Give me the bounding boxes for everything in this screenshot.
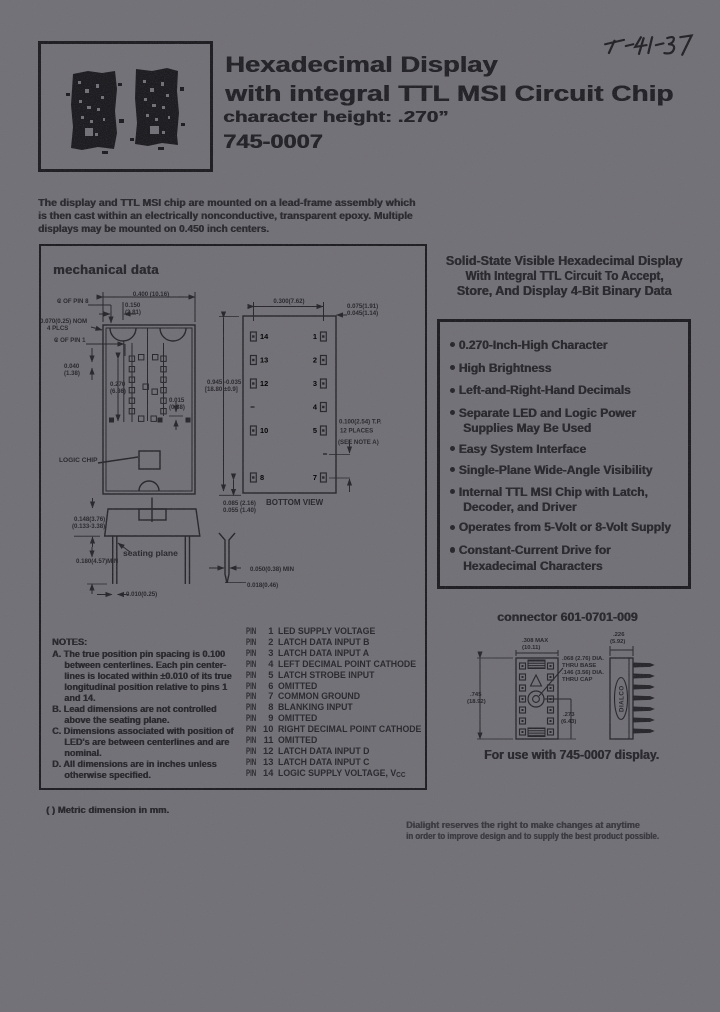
svg-text:0.180(4.57)MIN: 0.180(4.57)MIN — [76, 558, 118, 565]
svg-text:12: 12 — [260, 379, 268, 388]
svg-text:(5.92): (5.92) — [610, 639, 625, 645]
svg-text:4: 4 — [313, 403, 318, 412]
svg-text:.068 (2.76) DIA.: .068 (2.76) DIA. — [562, 656, 604, 662]
svg-text:14: 14 — [260, 332, 269, 341]
svg-text:.308 MAX: .308 MAX — [522, 638, 548, 644]
svg-text:seating plane: seating plane — [123, 548, 178, 558]
svg-text:0.015: 0.015 — [169, 397, 185, 404]
svg-text:.273: .273 — [563, 712, 575, 718]
svg-text:0.045(1.14): 0.045(1.14) — [347, 310, 378, 317]
svg-text:(1.38): (1.38) — [64, 370, 80, 377]
svg-text:BOTTOM VIEW: BOTTOM VIEW — [266, 498, 324, 507]
svg-text:0.400 (10.16): 0.400 (10.16) — [133, 291, 169, 298]
svg-text:0.010(0.25): 0.010(0.25) — [126, 591, 157, 598]
svg-text:12 PLACES: 12 PLACES — [340, 427, 373, 434]
svg-text:0.018(0.46): 0.018(0.46) — [247, 582, 278, 589]
svg-text:(18.92): (18.92) — [467, 699, 486, 705]
svg-text:.745: .745 — [470, 692, 482, 698]
svg-text:0.075(1.91): 0.075(1.91) — [347, 303, 378, 310]
svg-text:0.055 (1.40): 0.055 (1.40) — [223, 507, 256, 514]
svg-text:10: 10 — [260, 426, 268, 435]
svg-text:(0.38): (0.38) — [169, 404, 185, 411]
svg-text:13: 13 — [260, 356, 268, 365]
svg-text:0.040: 0.040 — [64, 363, 80, 370]
svg-text:4 PLCS: 4 PLCS — [47, 325, 68, 332]
svg-text:(3.81): (3.81) — [125, 309, 141, 316]
svg-text:₢ OF PIN 8: ₢ OF PIN 8 — [57, 298, 89, 305]
svg-text:0.148(3.76): 0.148(3.76) — [74, 516, 105, 523]
svg-text:(0.133-3.38): (0.133-3.38) — [72, 523, 105, 530]
svg-text:0.945 -0.035: 0.945 -0.035 — [207, 379, 242, 386]
svg-text:LOGIC CHIP: LOGIC CHIP — [59, 457, 98, 464]
svg-text:.226: .226 — [613, 632, 625, 638]
svg-text:.146 (3.56) DIA.: .146 (3.56) DIA. — [562, 670, 604, 676]
svg-text:THRU BASE: THRU BASE — [562, 663, 596, 669]
svg-text:8: 8 — [260, 473, 264, 482]
svg-text:0.050(0.38) MIN: 0.050(0.38) MIN — [250, 566, 294, 573]
svg-text:2: 2 — [313, 356, 317, 365]
svg-text:0.150: 0.150 — [125, 302, 141, 309]
svg-text:THRU CAP: THRU CAP — [562, 677, 593, 683]
svg-text:0.100(2.54) T.P.: 0.100(2.54) T.P. — [339, 419, 382, 426]
svg-text:₢ OF PIN 1: ₢ OF PIN 1 — [54, 337, 86, 344]
svg-text:(SEE NOTE A): (SEE NOTE A) — [338, 439, 379, 446]
svg-text:(10.11): (10.11) — [522, 645, 540, 651]
svg-text:(6.43): (6.43) — [561, 719, 576, 725]
svg-text:5: 5 — [313, 426, 317, 435]
svg-text:0.085 (2.16): 0.085 (2.16) — [223, 500, 256, 507]
svg-text:3: 3 — [313, 379, 317, 388]
svg-text:0.300(7.62): 0.300(7.62) — [273, 298, 304, 305]
svg-text:0.070(0.25) NOM: 0.070(0.25) NOM — [40, 318, 87, 325]
svg-text:0.270: 0.270 — [110, 381, 126, 388]
svg-text:DIALCO: DIALCO — [619, 685, 626, 712]
svg-text:[18.80 ±0.9]: [18.80 ±0.9] — [205, 386, 238, 393]
svg-text:1: 1 — [313, 332, 317, 341]
svg-text:(6.86): (6.86) — [110, 388, 126, 395]
svg-text:7: 7 — [313, 473, 317, 482]
